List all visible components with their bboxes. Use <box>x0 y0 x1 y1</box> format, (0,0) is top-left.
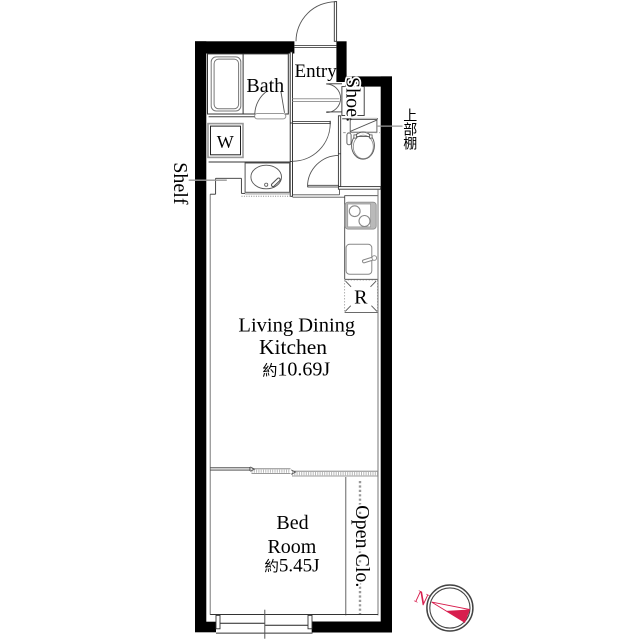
svg-text:Bed: Bed <box>276 512 308 534</box>
svg-text:約5.45J: 約5.45J <box>264 556 319 577</box>
svg-text:W: W <box>217 132 234 152</box>
svg-text:Open Clo.: Open Clo. <box>351 505 373 587</box>
svg-text:Room: Room <box>267 536 316 558</box>
svg-text:Shoe.: Shoe. <box>342 77 364 122</box>
svg-text:Shelf: Shelf <box>169 162 191 205</box>
svg-text:棚: 棚 <box>403 137 417 153</box>
svg-text:R: R <box>354 287 368 309</box>
svg-text:部: 部 <box>403 123 417 139</box>
svg-text:上: 上 <box>403 109 417 125</box>
svg-text:Living Dining: Living Dining <box>238 315 355 337</box>
svg-text:Bath: Bath <box>246 75 284 97</box>
svg-text:Entry: Entry <box>294 61 337 82</box>
svg-text:Kitchen: Kitchen <box>259 335 327 359</box>
